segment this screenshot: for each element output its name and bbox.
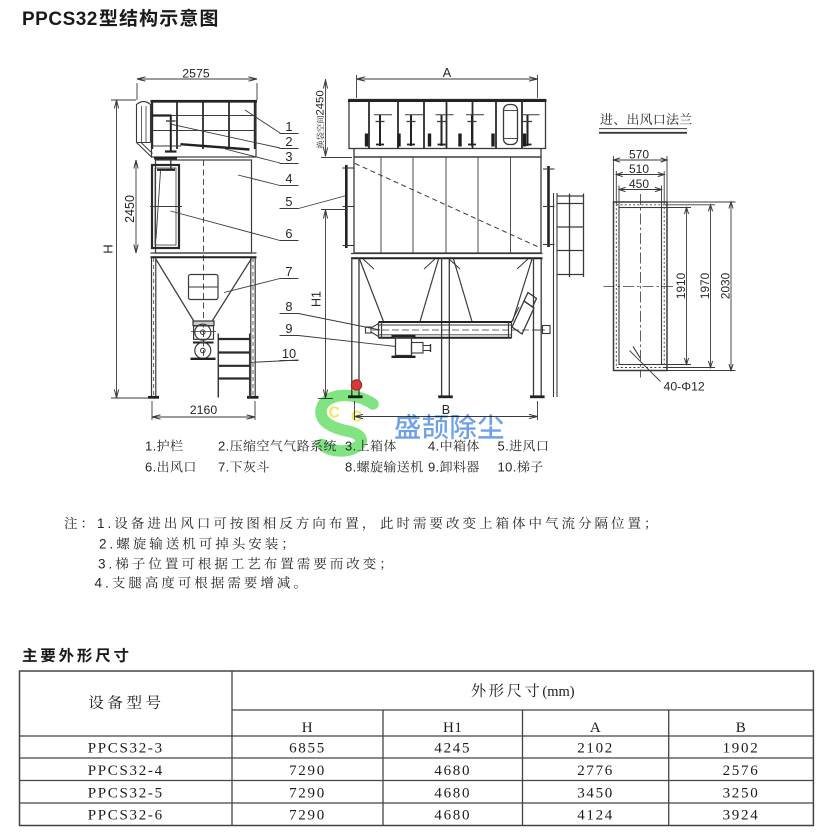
svg-text:1.: 1. [97,516,114,531]
svg-text:4245: 4245 [434,741,471,757]
svg-text:1910: 1910 [674,272,688,299]
svg-text:10.: 10. [498,460,517,475]
svg-text:A: A [590,720,601,736]
svg-text:4680: 4680 [434,763,471,779]
svg-text:6855: 6855 [289,741,326,757]
svg-text:4: 4 [285,171,292,186]
svg-text:H: H [302,720,313,736]
svg-text:2776: 2776 [577,763,614,779]
svg-text:B: B [736,720,747,736]
svg-text:3250: 3250 [723,786,760,802]
svg-text:H1: H1 [443,720,463,736]
svg-text:4124: 4124 [577,808,614,824]
svg-text:PPCS32-3: PPCS32-3 [88,741,164,757]
svg-text:7290: 7290 [289,786,326,802]
svg-text:3.: 3. [98,557,115,572]
svg-text:PPCS32: PPCS32 [22,9,98,30]
svg-text:7.: 7. [218,460,230,475]
svg-text:PPCS32-6: PPCS32-6 [88,808,164,824]
svg-text:1.: 1. [145,439,157,454]
svg-text:4680: 4680 [434,808,471,824]
svg-text:3: 3 [285,149,292,164]
svg-text:2450: 2450 [123,195,137,223]
svg-text:2.: 2. [218,439,230,454]
svg-text:(mm): (mm) [542,684,574,700]
svg-text:570: 570 [629,148,649,162]
svg-text:7: 7 [285,264,292,279]
svg-text:PPCS32-5: PPCS32-5 [88,786,164,802]
svg-text:5: 5 [285,194,292,209]
svg-text:510: 510 [629,162,649,176]
svg-text:1902: 1902 [723,741,760,757]
svg-text:4.: 4. [95,576,112,591]
svg-text:2575: 2575 [182,67,210,81]
svg-text:3924: 3924 [723,808,760,824]
svg-text:C: C [329,405,340,422]
svg-text:C: C [351,409,362,426]
svg-text:H: H [101,244,116,253]
svg-text:4.: 4. [428,439,440,454]
svg-text:H1: H1 [310,291,324,307]
svg-text:9: 9 [285,321,292,336]
svg-text:2450: 2450 [315,90,327,115]
svg-text:B: B [442,403,450,417]
svg-text:3.: 3. [345,439,357,454]
svg-text:1970: 1970 [698,272,712,299]
svg-text:8.: 8. [345,460,357,475]
svg-text:2576: 2576 [723,763,760,779]
svg-text:40-Φ12: 40-Φ12 [664,380,705,394]
svg-text:PPCS32-4: PPCS32-4 [88,763,164,779]
svg-text:450: 450 [629,177,649,191]
svg-text:2: 2 [285,134,292,149]
svg-text:2160: 2160 [190,403,218,417]
svg-text:5.: 5. [498,439,510,454]
svg-text:6.: 6. [145,460,157,475]
svg-text:A: A [443,66,452,80]
svg-text:2.: 2. [99,537,116,552]
svg-text:6: 6 [285,226,292,241]
svg-text:2030: 2030 [719,272,733,299]
svg-text:7290: 7290 [289,808,326,824]
svg-text:4680: 4680 [434,786,471,802]
svg-text:7290: 7290 [289,763,326,779]
svg-text:8: 8 [285,299,292,314]
svg-text:9.: 9. [428,460,440,475]
svg-text:1: 1 [285,119,292,134]
svg-text:2102: 2102 [577,741,614,757]
svg-text:3450: 3450 [577,786,614,802]
svg-text:10: 10 [282,346,296,361]
